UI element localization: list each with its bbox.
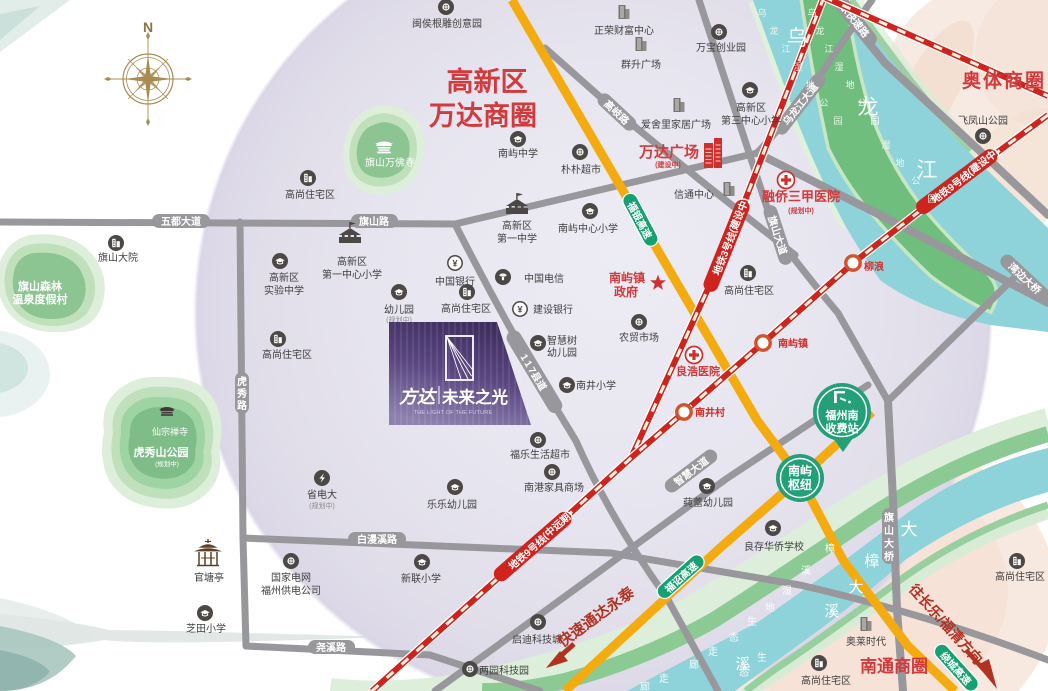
svg-text:芝田小学: 芝田小学 (186, 622, 226, 635)
svg-text:高新区: 高新区 (736, 101, 766, 114)
svg-text:南港家具商场: 南港家具商场 (524, 481, 584, 494)
svg-text:地: 地 (765, 601, 775, 614)
svg-text:国家电网: 国家电网 (271, 571, 311, 584)
svg-text:廊: 廊 (689, 658, 699, 671)
svg-text:南屿: 南屿 (788, 463, 812, 478)
svg-text:中国电信: 中国电信 (524, 272, 564, 285)
svg-text:南屿中学: 南屿中学 (498, 147, 538, 160)
svg-text:大: 大 (848, 579, 863, 596)
svg-text:方达: 方达 (399, 387, 438, 407)
svg-text:态: 态 (739, 666, 749, 679)
svg-text:园: 园 (870, 116, 879, 126)
svg-text:(建设中): (建设中) (655, 160, 681, 169)
svg-text:官塘亭: 官塘亭 (194, 571, 224, 584)
svg-text:廊: 廊 (640, 680, 650, 691)
svg-text:良存华侨学校: 良存华侨学校 (744, 540, 804, 553)
svg-text:飞凤山公园: 飞凤山公园 (958, 115, 1008, 127)
svg-text:万宝创业园: 万宝创业园 (696, 41, 746, 54)
svg-text:公: 公 (857, 98, 866, 108)
svg-text:旗: 旗 (884, 511, 894, 524)
svg-text:南屿中心小学: 南屿中心小学 (558, 222, 618, 235)
svg-text:乌: 乌 (757, 7, 766, 18)
svg-text:生: 生 (757, 651, 767, 664)
svg-text:高尚住宅区: 高尚住宅区 (285, 188, 335, 201)
svg-text:态: 态 (729, 631, 739, 644)
svg-text:虎: 虎 (237, 375, 247, 388)
svg-text:启迪科技城: 启迪科技城 (512, 633, 562, 646)
svg-text:白漫溪路: 白漫溪路 (357, 533, 398, 546)
svg-text:地: 地 (895, 157, 904, 168)
svg-text:湿: 湿 (793, 62, 802, 72)
svg-text:南井村: 南井村 (695, 406, 725, 419)
svg-text:旗山万佛寺: 旗山万佛寺 (365, 156, 415, 169)
svg-text:走: 走 (708, 646, 718, 658)
svg-text:生: 生 (747, 615, 757, 628)
svg-text:枢纽: 枢纽 (788, 477, 812, 492)
svg-text:N: N (143, 19, 153, 35)
svg-text:乐乐幼儿园: 乐乐幼儿园 (427, 498, 477, 511)
svg-text:山: 山 (884, 524, 894, 537)
svg-text:幼儿园: 幼儿园 (384, 303, 414, 316)
svg-text:农贸市场: 农贸市场 (619, 331, 659, 344)
svg-text:园: 园 (927, 194, 936, 204)
svg-text:万达商圈: 万达商圈 (429, 101, 537, 131)
svg-text:高新区: 高新区 (269, 271, 299, 284)
svg-text:走: 走 (659, 673, 669, 685)
svg-text:虎秀山公园: 虎秀山公园 (134, 445, 189, 459)
svg-text:信通中心: 信通中心 (674, 188, 714, 201)
svg-text:江: 江 (824, 44, 833, 54)
svg-text:幼儿园: 幼儿园 (547, 346, 577, 359)
svg-text:南井小学: 南井小学 (576, 379, 616, 392)
svg-text:两园科技园: 两园科技园 (479, 664, 529, 677)
svg-text:未来之光: 未来之光 (442, 387, 509, 407)
svg-text:闽侯根雕创意园: 闽侯根雕创意园 (412, 17, 482, 30)
svg-text:旗山大院: 旗山大院 (98, 251, 138, 264)
svg-text:THE LIGHT OF THE FUTURE: THE LIGHT OF THE FUTURE (414, 410, 493, 416)
svg-text:湿: 湿 (782, 585, 792, 597)
svg-text:樟: 樟 (825, 542, 835, 555)
svg-text:高尚住宅区: 高尚住宅区 (995, 570, 1045, 583)
svg-text:旗山森林: 旗山森林 (18, 279, 62, 293)
svg-text:万达广场: 万达广场 (638, 143, 699, 161)
svg-text:乌: 乌 (807, 7, 816, 18)
svg-text:正荣财富中心: 正荣财富中心 (594, 24, 654, 37)
svg-text:龙: 龙 (769, 25, 778, 36)
svg-text:高尚住宅区: 高尚住宅区 (801, 674, 851, 687)
svg-text:新联小学: 新联小学 (401, 572, 441, 585)
svg-text:地: 地 (805, 79, 814, 90)
svg-text:溪: 溪 (824, 603, 839, 620)
svg-text:旗山路: 旗山路 (359, 215, 390, 228)
svg-text:柳浪: 柳浪 (864, 260, 884, 273)
svg-text:高新区: 高新区 (502, 219, 532, 232)
svg-text:第一中心小学: 第一中心小学 (322, 268, 382, 281)
svg-text:高尚住宅区: 高尚住宅区 (262, 348, 312, 361)
svg-text:仙宗禅寺: 仙宗禅寺 (152, 426, 188, 437)
svg-text:第一中学: 第一中学 (497, 232, 537, 245)
svg-text:群升广场: 群升广场 (621, 58, 661, 71)
svg-text:爱舍里家居广场: 爱舍里家居广场 (641, 118, 711, 131)
svg-text:南屿镇: 南屿镇 (778, 337, 808, 350)
svg-text:湿: 湿 (881, 140, 890, 150)
svg-text:福乐生活超市: 福乐生活超市 (510, 448, 570, 461)
svg-text:高新区: 高新区 (447, 66, 528, 97)
svg-text:(规划中): (规划中) (155, 459, 179, 468)
svg-text:蒓蕾幼儿园: 蒓蕾幼儿园 (683, 496, 733, 509)
svg-text:收费站: 收费站 (826, 421, 859, 435)
svg-text:五都大道: 五都大道 (161, 215, 201, 228)
svg-text:溪: 溪 (801, 565, 811, 577)
svg-text:湿: 湿 (834, 62, 843, 72)
svg-text:桥: 桥 (884, 550, 895, 563)
svg-text:尧溪路: 尧溪路 (316, 641, 347, 654)
svg-text:奥莱时代: 奥莱时代 (846, 635, 886, 648)
svg-text:高尚住宅区: 高尚住宅区 (724, 284, 774, 297)
svg-text:省电大: 省电大 (307, 488, 337, 501)
svg-text:南屿镇: 南屿镇 (609, 270, 645, 285)
svg-text:智慧树: 智慧树 (547, 334, 577, 347)
svg-text:良浩医院: 良浩医院 (676, 364, 720, 378)
svg-text:秀: 秀 (236, 387, 247, 400)
svg-text:大: 大 (901, 520, 918, 539)
svg-text:融侨三甲医院: 融侨三甲医院 (762, 189, 840, 204)
svg-text:公: 公 (911, 176, 920, 186)
svg-text:公: 公 (819, 98, 828, 108)
svg-text:南通商圈: 南通商圈 (860, 656, 928, 676)
svg-text:实验中学: 实验中学 (264, 284, 304, 297)
svg-text:高新区: 高新区 (337, 255, 367, 268)
svg-text:(规划中): (规划中) (788, 206, 814, 215)
svg-text:园: 园 (833, 116, 842, 126)
svg-text:福州供电公司: 福州供电公司 (261, 584, 321, 597)
svg-text:政府: 政府 (614, 284, 638, 299)
svg-text:江: 江 (781, 44, 790, 54)
svg-text:地: 地 (845, 79, 854, 90)
svg-text:(规划中): (规划中) (309, 501, 335, 510)
svg-text:奥体商圈: 奥体商圈 (962, 69, 1046, 92)
svg-text:高尚住宅区: 高尚住宅区 (441, 302, 491, 315)
svg-text:温泉度假村: 温泉度假村 (13, 292, 68, 306)
svg-text:朴朴超市: 朴朴超市 (561, 163, 601, 176)
svg-text:龙: 龙 (815, 25, 824, 36)
svg-text:第三中心小学: 第三中心小学 (721, 114, 781, 127)
svg-text:福州南: 福州南 (825, 408, 859, 422)
svg-text:大: 大 (884, 537, 894, 550)
svg-text:樟: 樟 (864, 552, 879, 570)
svg-text:建设银行: 建设银行 (533, 303, 573, 316)
svg-text:路: 路 (237, 399, 248, 412)
